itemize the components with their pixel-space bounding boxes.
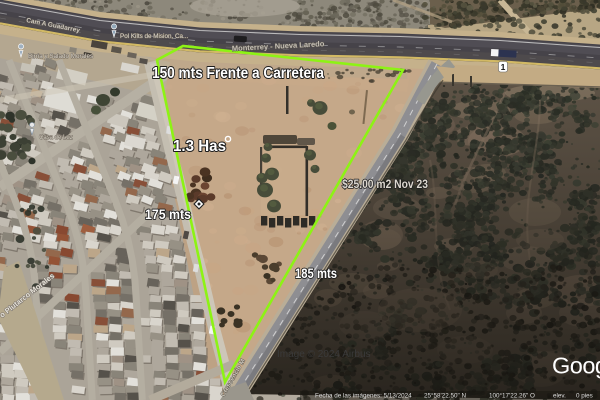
svg-text:100°17'22.26" O: 100°17'22.26" O <box>489 392 535 400</box>
svg-text:175 mts: 175 mts <box>145 207 191 222</box>
svg-text:1: 1 <box>501 62 506 72</box>
svg-text:185 mts: 185 mts <box>295 266 337 281</box>
svg-text:25°58'22.50" N: 25°58'22.50" N <box>424 392 466 400</box>
svg-text:Casa de Luz: Casa de Luz <box>39 135 73 141</box>
svg-text:Google: Google <box>552 353 600 379</box>
svg-text:Image © 2024 Airbus: Image © 2024 Airbus <box>277 349 371 360</box>
svg-text:$25.00 m2 Nov 23: $25.00 m2 Nov 23 <box>342 179 428 191</box>
svg-text:elev.: elev. <box>553 393 566 400</box>
svg-text:150 mts Frente a Carretera: 150 mts Frente a Carretera <box>152 65 324 82</box>
svg-text:Fecha de las imágenes: 5/13/20: Fecha de las imágenes: 5/13/2024 <box>315 393 412 400</box>
svg-text:1.3 Has: 1.3 Has <box>173 138 226 155</box>
svg-text:0 pies: 0 pies <box>576 393 593 400</box>
svg-text:Birria y Salado Morales: Birria y Salado Morales <box>28 53 93 60</box>
svg-text:Pol Kilts de Mision, Ca...: Pol Kilts de Mision, Ca... <box>120 33 188 40</box>
